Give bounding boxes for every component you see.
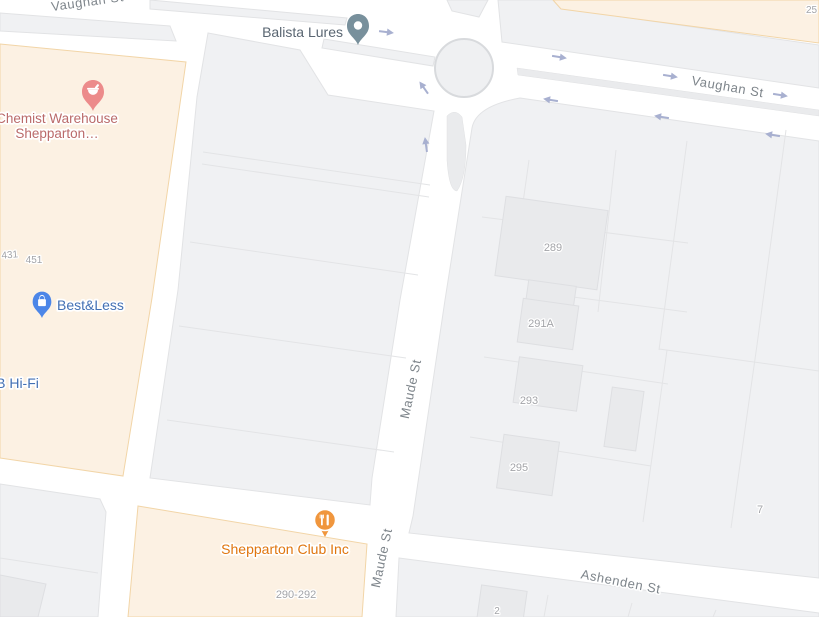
map-svg[interactable]: Vaughan St Vaughan St Maude St Maude St … — [0, 0, 819, 617]
parcel-number-2: 2 — [494, 606, 500, 617]
chemist-warehouse-label-line1[interactable]: Chemist Warehouse — [0, 111, 118, 126]
chemist-warehouse-label-line2[interactable]: Shepparton… — [15, 126, 98, 141]
pin-hole — [354, 21, 362, 29]
parcel-number-290-292: 290-292 — [276, 589, 316, 601]
parcel-number-25: 25 — [806, 5, 818, 16]
jb-hifi-label[interactable]: JB Hi-Fi — [0, 375, 39, 391]
parcel-number-295: 295 — [510, 462, 528, 474]
roundabout-island — [435, 39, 493, 97]
shepparton-club-label[interactable]: Shepparton Club Inc — [221, 541, 349, 557]
parcel-number-7: 7 — [757, 504, 763, 516]
parcel-number-289: 289 — [544, 242, 562, 254]
parcel-number-293: 293 — [520, 395, 538, 407]
parcel-number-451: 451 — [26, 255, 43, 266]
best-and-less-label[interactable]: Best&Less — [57, 297, 124, 313]
parcel-number-431: 431 — [1, 249, 19, 261]
parcel-number-291a: 291A — [528, 318, 554, 330]
map-canvas[interactable]: Vaughan St Vaughan St Maude St Maude St … — [0, 0, 819, 617]
balista-lures-label[interactable]: Balista Lures — [262, 24, 343, 40]
